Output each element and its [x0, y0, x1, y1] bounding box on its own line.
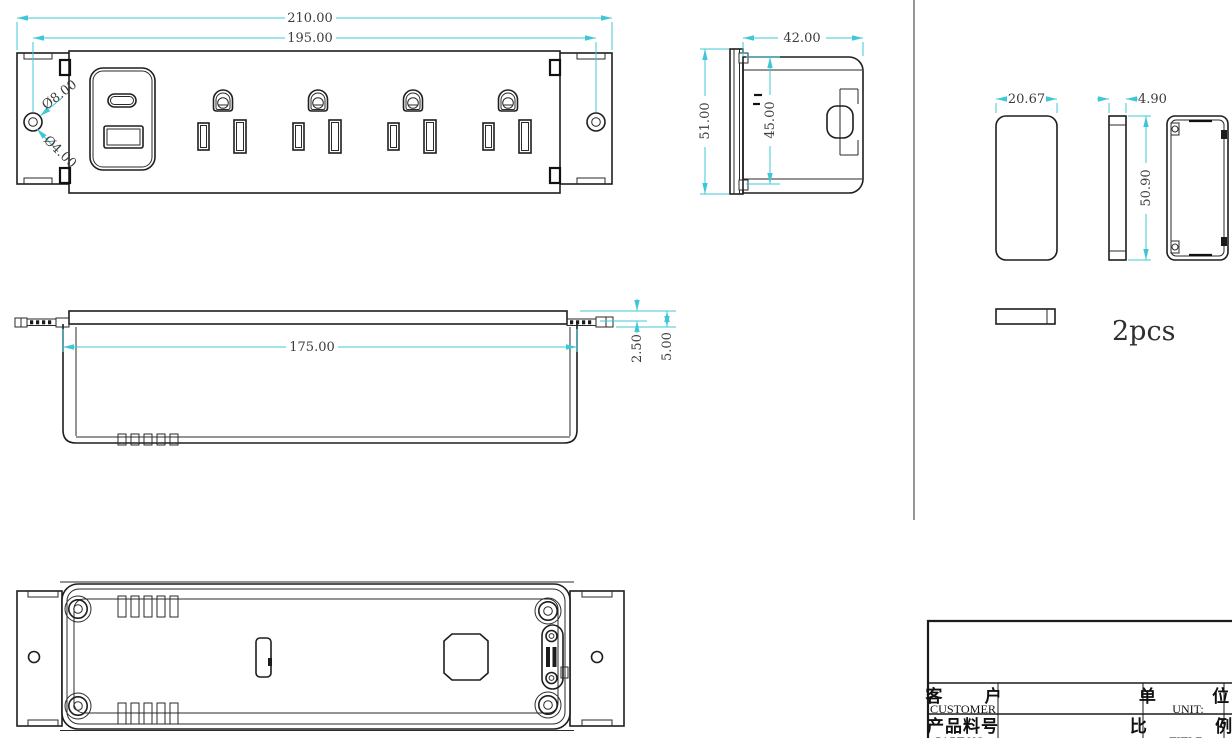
endcap-back [1167, 116, 1228, 260]
body-profile [743, 57, 863, 193]
endcap-views: 2pcs 20.67 4.90 50.90 [996, 92, 1228, 347]
housing-outer [62, 584, 570, 729]
dim-plate-lip: 2.50 [630, 334, 645, 363]
face-plate-edge [730, 49, 743, 194]
strip-body [69, 51, 560, 193]
endcap-top [996, 309, 1055, 324]
dim-endcap-thickness: 4.90 [1138, 92, 1167, 107]
front-view: 210.00 195.00 Ø8.00 Ø4.00 [17, 11, 612, 193]
endcap-side [1109, 116, 1126, 260]
dim-endcap-height: 50.90 [1139, 169, 1154, 206]
title-block: 客 户 CUSTOMER 产品料号 PART NO 单 位 UNIT: 比 例 … [924, 621, 1232, 738]
scale-label-cn: 比 例 [1130, 716, 1232, 736]
endcap-dimensions: 20.67 4.90 50.90 [996, 92, 1167, 260]
unit-label-en: UNIT: [1172, 702, 1203, 716]
cad-drawing-sheet: 210.00 195.00 Ø8.00 Ø4.00 [0, 0, 1232, 738]
part-no-label-en: PART NO [936, 734, 985, 738]
part-no-label-cn: 产品料号 [927, 716, 999, 736]
dim-height: 51.00 [698, 102, 713, 139]
ear-left [17, 591, 62, 726]
scale-label-en: TITLE [1169, 734, 1202, 738]
profile-view: 175.00 2.50 5.00 [15, 299, 676, 445]
side-view: 42.00 51.00 45.00 [698, 31, 863, 194]
dim-inner-length: 175.00 [289, 340, 335, 355]
cable-recess [827, 89, 858, 155]
wing-left [15, 318, 69, 327]
dim-overall-width: 210.00 [287, 11, 333, 26]
drawing-canvas: 210.00 195.00 Ø8.00 Ø4.00 [0, 0, 1232, 738]
dim-endcap-width: 20.67 [1008, 92, 1045, 107]
dim-inner-height: 45.00 [763, 101, 778, 138]
endcap-front [996, 116, 1057, 260]
dim-plate-offset: 5.00 [660, 332, 675, 361]
back-view [17, 582, 624, 731]
profile-dimensions: 175.00 2.50 5.00 [63, 299, 676, 363]
ear-right [570, 591, 624, 726]
dim-depth: 42.00 [783, 31, 820, 46]
side-dimensions: 42.00 51.00 45.00 [698, 31, 863, 194]
dim-hole-spacing: 195.00 [287, 31, 333, 46]
wing-right [567, 317, 613, 327]
face-plate [69, 311, 567, 324]
customer-label-en: CUSTOMER [930, 702, 996, 716]
endcap-quantity: 2pcs [1112, 316, 1175, 347]
